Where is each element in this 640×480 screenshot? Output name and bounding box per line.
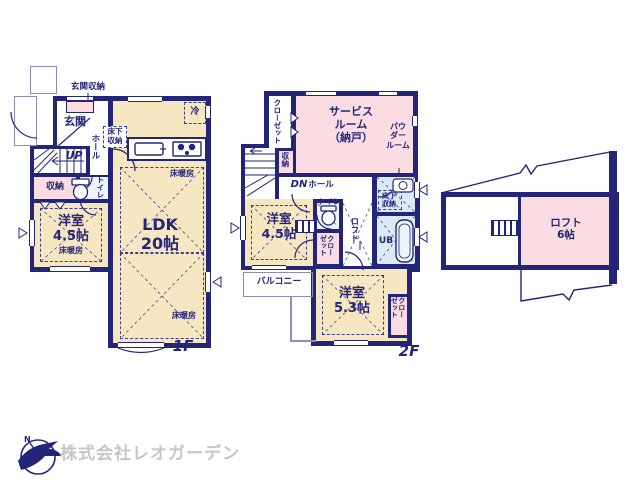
f1-bedroom-floorheat-label: 床暖房: [48, 246, 94, 255]
f1-fridge-label: 冷: [189, 107, 201, 118]
loft-label: ロフト 6帖: [542, 217, 590, 242]
washstand-icon: [393, 179, 413, 192]
f2-closet-top-label: クローゼット: [273, 99, 281, 149]
company-name: 株式会社レオガーデン: [60, 444, 300, 464]
f2-closet-right-label: クロー ゼット: [390, 297, 405, 337]
f2-closet-mid-label: クロー ゼット: [319, 235, 334, 265]
f2-underfloor-label: 床下 収納: [379, 192, 399, 209]
f1-storage-label: 収納: [37, 182, 73, 193]
svg-text:N: N: [24, 435, 31, 444]
f2-stairs-icon: [245, 148, 275, 196]
f1-entrance-storage-label: 玄関収納: [58, 82, 118, 92]
f1-up-label: UP: [62, 150, 86, 163]
f2-bedroom53-label: 洋室 5.3帖: [324, 286, 380, 317]
f2-storage-label: 収納: [281, 152, 289, 172]
f2-lower-roof-edge: [291, 297, 316, 341]
f2-toilet-icon: [321, 206, 336, 225]
f2-service-room-label: サービス ルーム （納戸）: [318, 106, 384, 145]
f2-bedroom45-label: 洋室 4.5帖: [251, 212, 307, 242]
f1-toilet-label: トイレ: [96, 176, 104, 200]
f1-floor-label: 1F: [166, 338, 200, 356]
f1-toilet-icon: [72, 179, 89, 200]
f2-toilet-label: トイレ: [317, 198, 341, 207]
company-logo: N: [18, 435, 62, 474]
kitchen-counter-icon: [128, 138, 206, 160]
f2-powder-room-label: パウ ダー ルーム: [383, 122, 413, 150]
f1-underfloor-label: 床下 収納: [104, 128, 126, 146]
f2-balcony-label: バルコニー: [252, 277, 306, 288]
f2-loft-access-label: ロフト: [349, 217, 358, 253]
f1-floorheat-top-label: 床暖房: [162, 169, 202, 178]
f1-bedroom-label: 洋室 4.5帖: [43, 214, 99, 245]
f1-hall-label: ホール: [90, 134, 99, 170]
f2-hall-label: ホール: [304, 180, 338, 190]
f1-ldk-label: LDK 20帖: [128, 216, 192, 254]
floor-plan-page: N 玄関収納 玄関 UP ホール 床下 収納 冷 トイレ 収納 洋室 4.5帖 …: [0, 0, 640, 480]
f1-floorheat-bottom-label: 床暖房: [164, 311, 204, 320]
f1-entrance-label: 玄関: [58, 116, 92, 129]
f2-floor-label: 2F: [392, 343, 426, 361]
f2-unit-bath-label: UB: [377, 236, 395, 247]
bathtub-icon: [396, 220, 413, 262]
